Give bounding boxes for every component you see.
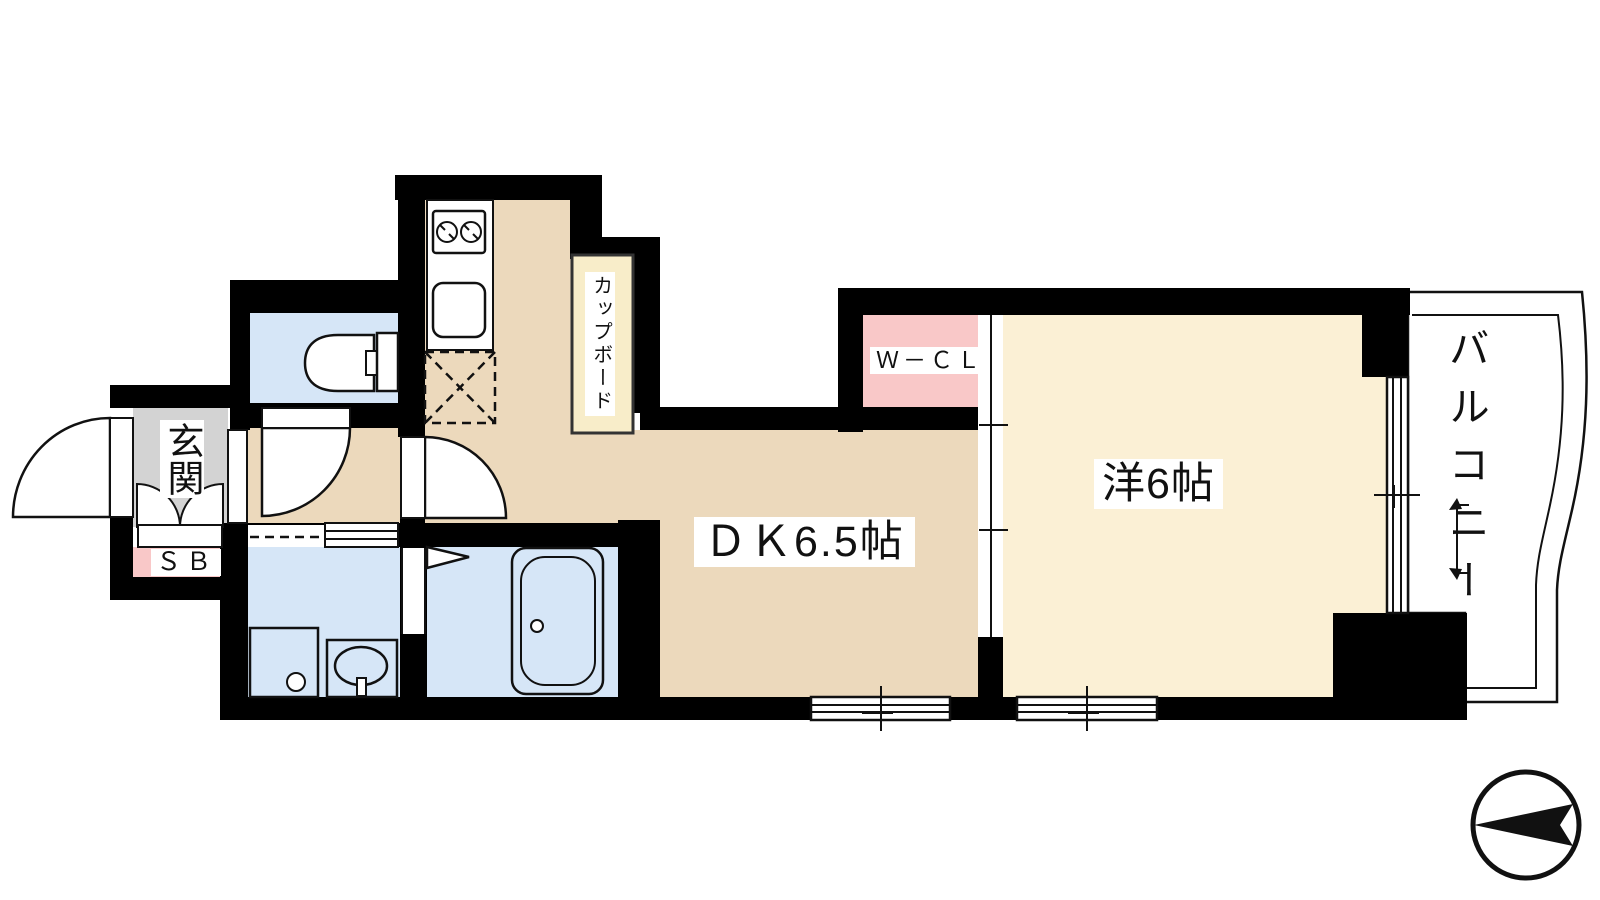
western-room-label: 洋6帖 — [1094, 459, 1223, 509]
wall-partition-pier — [978, 637, 1003, 697]
wall-sb-bottom — [110, 577, 230, 600]
wall-washroom-left — [220, 523, 248, 720]
kitchen-sink-icon — [433, 283, 485, 337]
balcony-label: バルコニー — [1443, 327, 1487, 617]
wall-room-ne-pier — [1362, 315, 1408, 377]
front-door-swing-arc — [13, 418, 110, 517]
toilet-door-leaf — [262, 408, 350, 428]
wall-genkan-top — [110, 385, 230, 408]
kitchen-counter — [427, 200, 493, 350]
front-door — [13, 418, 133, 517]
shoe-box-label: ＳＢ — [151, 549, 221, 576]
wall-south — [220, 697, 1360, 720]
compass — [1473, 772, 1579, 878]
wall-dk-top — [640, 407, 980, 430]
floor-plan: 玄関 ＳＢ カップボード ＤＫ6.5帖 Ｗ－ＣＬ 洋6帖 バルコニー — [0, 0, 1600, 900]
wall-kitchen-step — [570, 175, 602, 240]
dining-kitchen-label: ＤＫ6.5帖 — [694, 517, 915, 567]
stove-icon — [433, 211, 485, 253]
bathtub-icon — [512, 548, 603, 694]
wall-wcl-left — [838, 292, 863, 432]
wall-cupboard-right — [633, 237, 660, 413]
wall-north — [838, 288, 1410, 315]
cupboard-label: カップボード — [585, 272, 615, 416]
genkan-label: 玄関 — [160, 420, 204, 498]
washroom-sliding-door — [325, 523, 398, 547]
toilet-icon — [305, 333, 398, 391]
wall-toilet-top — [230, 280, 425, 313]
washing-machine-pan — [250, 628, 318, 697]
front-door-leaf — [110, 418, 133, 517]
wall-kitchen-top — [395, 175, 600, 200]
dk-door-leaf — [401, 437, 425, 518]
washbasin-icon — [327, 640, 397, 697]
genkan-hall-opening — [228, 430, 247, 523]
walk-in-closet-label: Ｗ－ＣＬ — [870, 347, 990, 374]
floor-plan-drawing — [0, 0, 1600, 900]
wall-bathroom-right — [618, 520, 660, 720]
